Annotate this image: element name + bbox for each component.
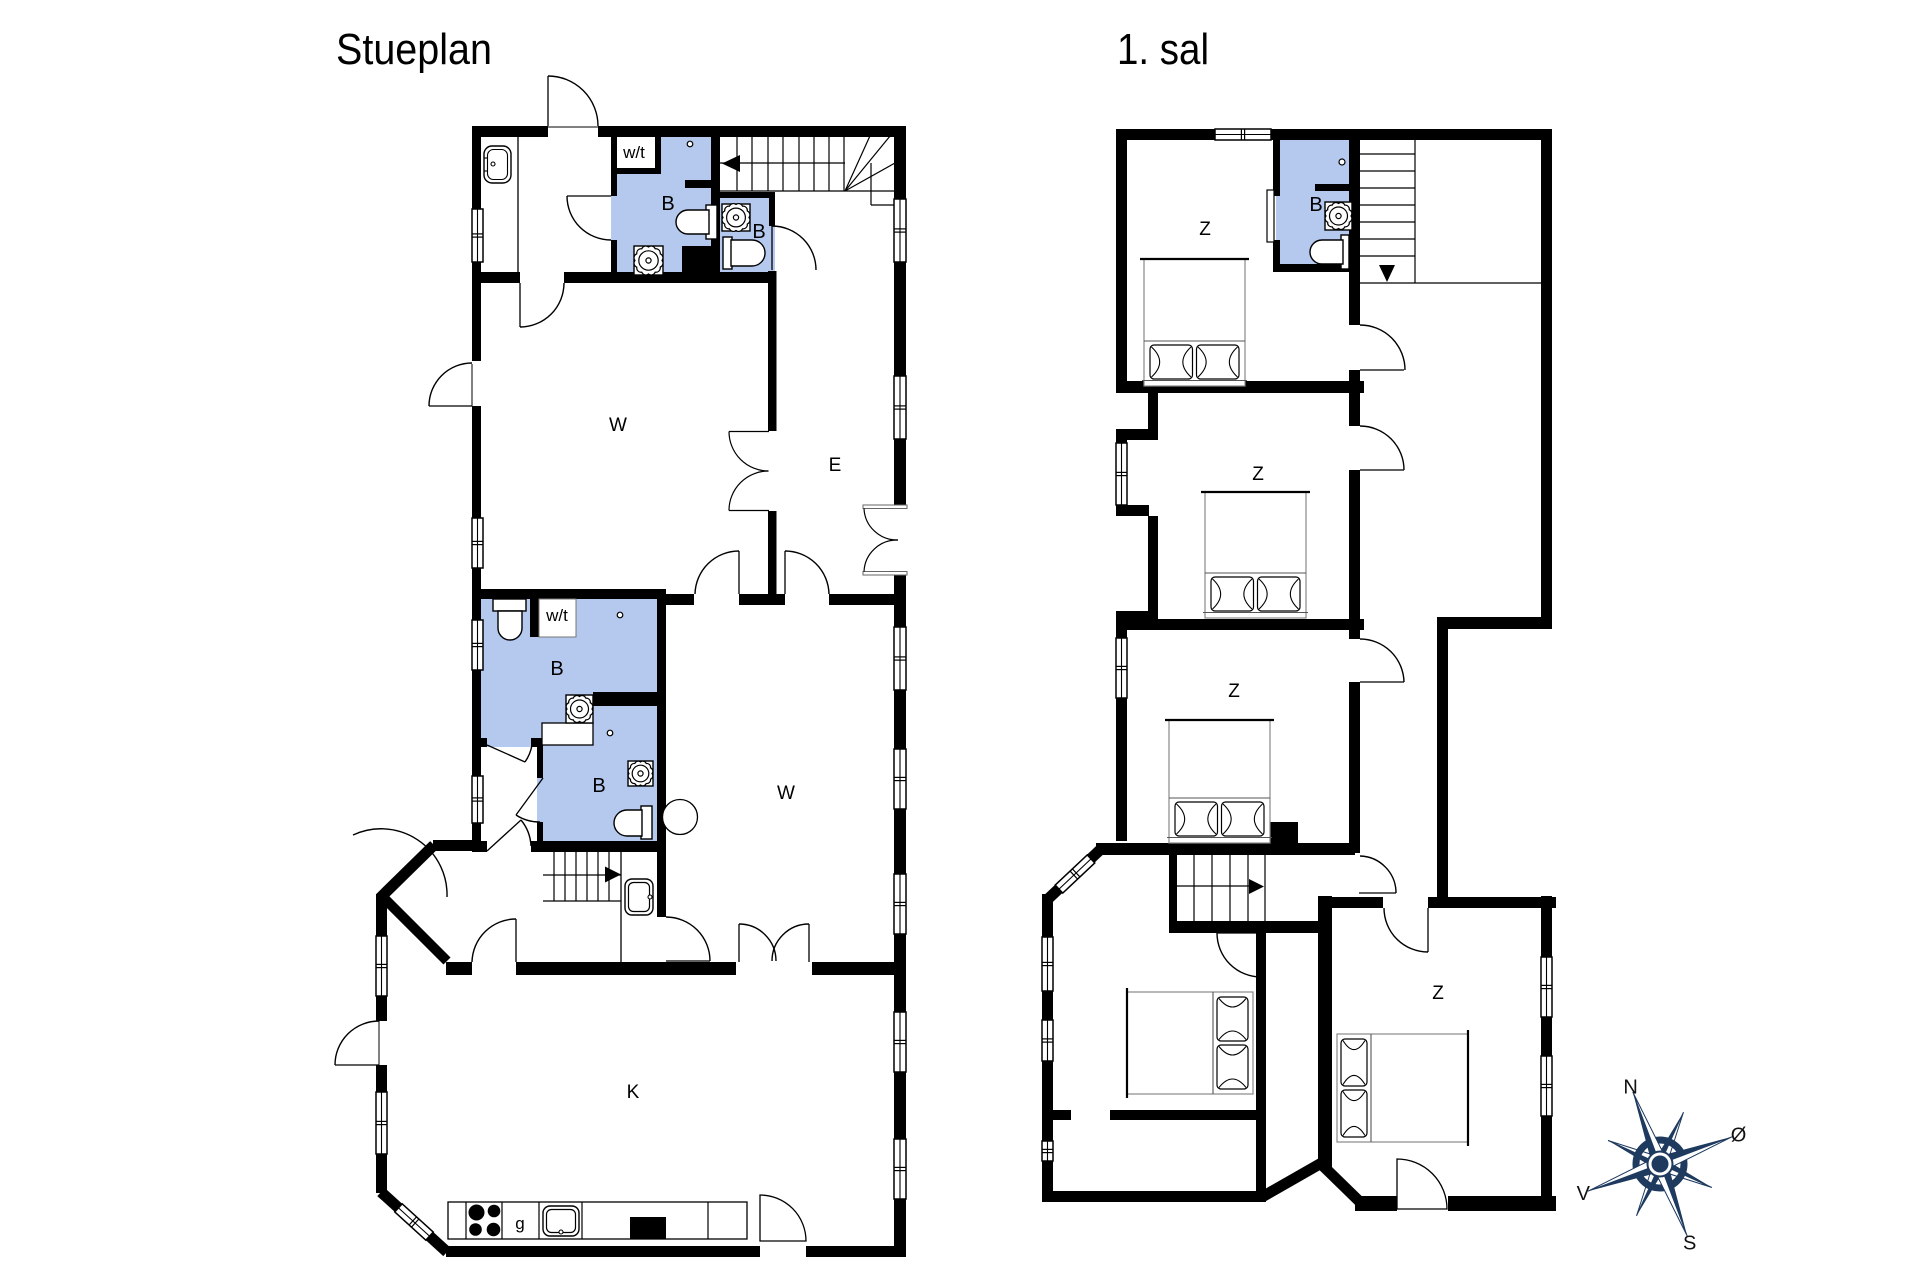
svg-text:Ø: Ø xyxy=(1731,1124,1747,1146)
svg-text:g: g xyxy=(515,1214,524,1233)
svg-text:Z: Z xyxy=(1199,219,1211,240)
svg-text:B: B xyxy=(550,658,563,680)
svg-text:B: B xyxy=(661,193,674,215)
svg-text:B: B xyxy=(1309,194,1322,216)
svg-text:w/t: w/t xyxy=(622,143,645,162)
svg-text:V: V xyxy=(1577,1183,1591,1205)
svg-text:Stueplan: Stueplan xyxy=(336,25,492,74)
svg-text:S: S xyxy=(1683,1233,1696,1255)
svg-text:E: E xyxy=(829,455,842,476)
svg-text:1. sal: 1. sal xyxy=(1117,25,1209,74)
svg-text:W: W xyxy=(777,783,795,804)
svg-text:N: N xyxy=(1623,1076,1637,1098)
svg-text:K: K xyxy=(627,1082,640,1103)
svg-text:Z: Z xyxy=(1432,983,1444,1004)
svg-text:W: W xyxy=(609,415,627,436)
svg-text:Z: Z xyxy=(1252,464,1264,485)
svg-text:Z: Z xyxy=(1228,681,1240,702)
svg-text:w/t: w/t xyxy=(545,606,568,625)
svg-text:B: B xyxy=(592,775,605,797)
